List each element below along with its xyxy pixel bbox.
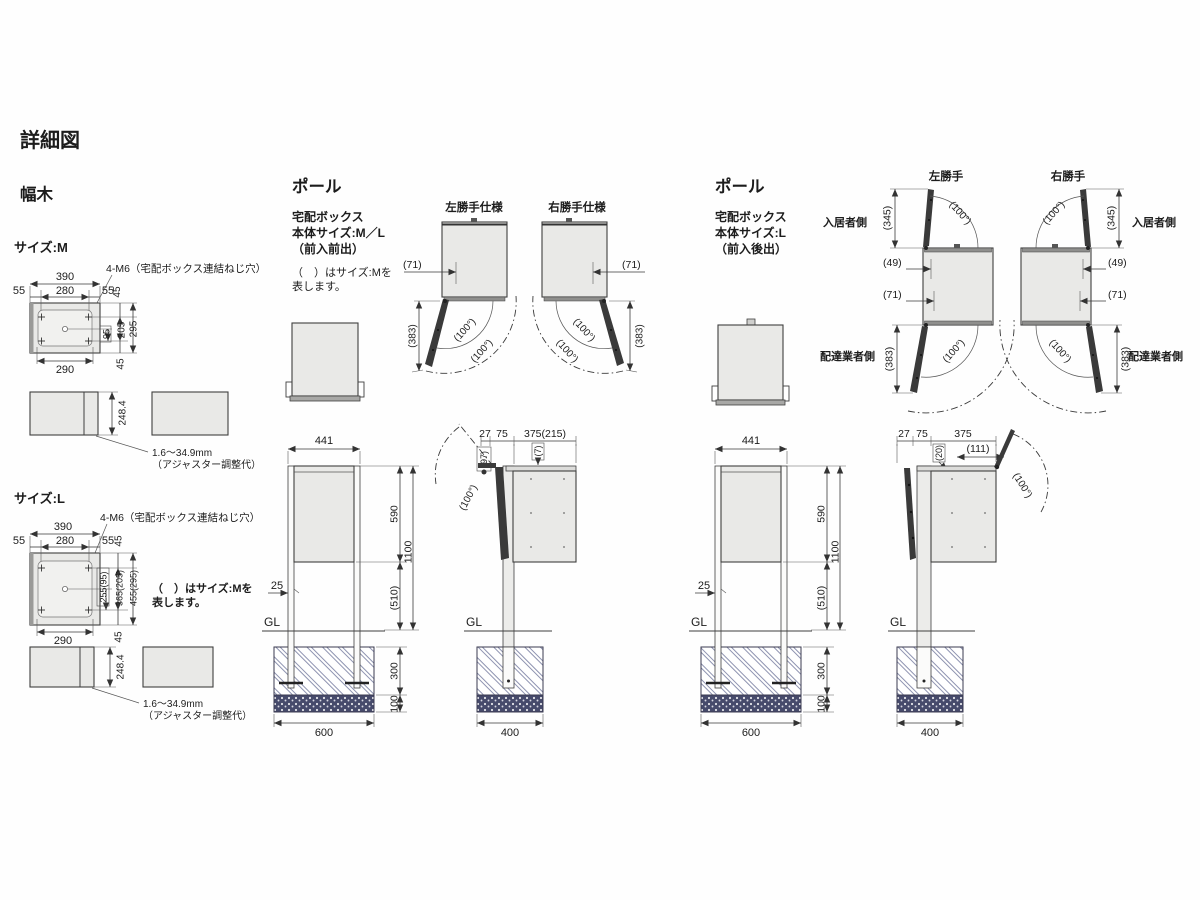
right-spec-angle-1: (100°): [571, 316, 597, 344]
dim-l-55l: 55: [13, 535, 25, 547]
dim-m-45top: 45: [112, 286, 123, 298]
rear-lp-49: (49): [883, 257, 902, 269]
pf-front-510: (510): [389, 586, 401, 611]
pf-side-375: 375(215): [524, 428, 566, 440]
pf-front-gl: GL: [264, 615, 280, 629]
pr-front-1100: 1100: [830, 541, 842, 564]
page-title: 詳細図: [20, 128, 80, 152]
pr-front-gl: GL: [691, 615, 707, 629]
pr-side-111: (111): [967, 443, 990, 455]
left-spec-angle-1: (100°): [452, 316, 478, 344]
pole-rear-heading: ポール: [715, 176, 765, 196]
dim-l-45top: 45: [114, 535, 125, 547]
dim-l-280: 280: [56, 535, 74, 547]
left-spec-angle-2: (100°): [469, 337, 495, 365]
dim-l-390: 390: [54, 521, 72, 533]
pr-front-25: 25: [698, 580, 710, 592]
rear-rp-49: (49): [1108, 257, 1127, 269]
dim-m-290: 290: [56, 364, 74, 376]
pole-front-left-spec-plan: 左勝手仕様 (100°) (100°) (71) (383): [403, 200, 516, 373]
left-spec-d383: (383): [408, 324, 419, 347]
size-m-label: サイズ:M: [14, 240, 68, 255]
dim-l-365: 365(205): [115, 570, 125, 606]
m-adjuster-note-1: 1.6〜34.9mm: [152, 448, 212, 459]
pr-side-27: 27: [898, 428, 910, 440]
habaki-size-m-plan: サイズ:M 4-M6（宅配ボックス連結ねじ穴） 390 55 280 55 45…: [13, 240, 266, 376]
dim-l-45bot: 45: [114, 631, 125, 643]
resident-side-label-right: 入居者側: [1132, 215, 1176, 229]
pole-rear-text-block: ポール 宅配ボックス 本体サイズ:L （前入後出）: [715, 176, 787, 256]
pole-rear-small-front-view: [712, 319, 789, 405]
pr-front-441: 441: [742, 435, 760, 447]
pr-front-510: (510): [816, 586, 828, 611]
rear-rp-71: (71): [1108, 289, 1127, 301]
right-spec-d383: (383): [635, 324, 646, 347]
dim-l-455: 455(295): [129, 570, 139, 606]
right-spec-label: 右勝手仕様: [547, 200, 606, 214]
rear-right-plan-label: 右勝手: [1050, 169, 1086, 183]
pole-rear-side-view: 27 75 375 (20) (111) (100°) GL 400: [888, 428, 1048, 739]
left-spec-d71: (71): [403, 259, 422, 271]
pr-side-375: 375: [954, 428, 972, 440]
pf-side-gl: GL: [466, 615, 482, 629]
pf-front-1100: 1100: [403, 541, 415, 564]
pf-side-75: 75: [496, 428, 508, 440]
pole-front-note-2: 表します。: [292, 279, 346, 293]
pole-rear-product: 宅配ボックス: [715, 209, 787, 224]
rear-left-plan-label: 左勝手: [928, 169, 964, 183]
courier-side-label-left: 配達業者側: [820, 349, 875, 363]
pole-front-text-block: ポール 宅配ボックス 本体サイズ:M／L （前入前出） （ ）はサイズ:Mを 表…: [292, 176, 392, 293]
pole-front-right-spec-plan: 右勝手仕様 (100°) (100°) (71) (383): [533, 200, 646, 373]
size-l-note-1: （ ）はサイズ:Mを: [152, 581, 253, 595]
pole-rear-front-view: 441 590 (510) 1100 25 GL 300 100 600: [689, 435, 846, 739]
dim-m-280: 280: [56, 285, 74, 297]
pr-front-100: 100: [816, 695, 828, 713]
dim-l-2484: 248.4: [116, 654, 127, 679]
pole-front-side-view: 27 75 375(215) (97) (7) (100°) GL 400: [435, 424, 576, 739]
dim-m-2484: 248.4: [118, 400, 129, 425]
dim-m-205: 205: [117, 321, 128, 338]
m-adjuster-note-2: （アジャスター調整代）: [152, 458, 261, 471]
size-l-note-2: 表します。: [151, 595, 206, 609]
l-adjuster-note-2: （アジャスター調整代）: [143, 709, 252, 722]
pole-front-product: 宅配ボックス: [292, 209, 364, 224]
size-l-screw-note: 4-M6（宅配ボックス連結ねじ穴）: [100, 511, 260, 524]
pole-rear-loading: （前入後出）: [715, 241, 787, 256]
pole-front-small-front-view: [286, 323, 364, 401]
l-adjuster-note-1: 1.6〜34.9mm: [143, 699, 203, 710]
pf-front-25: 25: [271, 580, 283, 592]
size-m-screw-note: 4-M6（宅配ボックス連結ねじ穴）: [106, 262, 266, 275]
pr-side-400: 400: [921, 727, 939, 739]
rear-rp-angle-top: (100°): [1041, 199, 1067, 227]
rear-lp-71: (71): [883, 289, 902, 301]
rear-lp-383: (383): [884, 347, 896, 372]
pole-rear-right-plan: 右勝手 (100°) (345) (49) (71) (383) (100°): [1000, 169, 1132, 413]
size-l-label: サイズ:L: [14, 491, 65, 506]
right-spec-angle-2: (100°): [554, 337, 580, 365]
pr-front-600: 600: [742, 727, 760, 739]
pf-front-600: 600: [315, 727, 333, 739]
pr-side-20: (20): [934, 445, 944, 461]
rear-rp-345: (345): [1106, 206, 1118, 231]
pf-front-441: 441: [315, 435, 333, 447]
pr-side-gl: GL: [890, 615, 906, 629]
pole-front-heading: ポール: [292, 176, 342, 196]
pr-front-300: 300: [816, 662, 828, 680]
pole-front-note-1: （ ）はサイズ:Mを: [292, 265, 392, 279]
dim-m-295: 295: [129, 320, 140, 337]
habaki-size-l-plan: サイズ:L 4-M6（宅配ボックス連結ねじ穴） 390 55 280 55 45…: [13, 491, 260, 647]
pf-front-100: 100: [389, 695, 401, 713]
pf-front-590: 590: [389, 505, 401, 523]
pr-side-75: 75: [916, 428, 928, 440]
habaki-size-l-side: 248.4 1.6〜34.9mm （アジャスター調整代）: [30, 647, 252, 722]
dim-m-55l: 55: [13, 285, 25, 297]
left-spec-label: 左勝手仕様: [444, 200, 503, 214]
habaki-size-m-side: 248.4 1.6〜34.9mm （アジャスター調整代）: [30, 392, 261, 471]
right-spec-d71: (71): [622, 259, 641, 271]
pole-rear-left-plan: 左勝手 (100°) (345) (49) (71) (383) (100°): [882, 169, 1015, 413]
dim-m-45bot: 45: [116, 358, 127, 370]
detail-drawing-page: 詳細図 幅木 サイズ:M 4-M6（宅配ボックス連結ねじ穴） 390 55 28…: [0, 0, 1200, 900]
pf-front-300: 300: [389, 662, 401, 680]
dim-l-290: 290: [54, 635, 72, 647]
pole-front-front-view: 441 590 (510) 1100 25 GL 300 100 600: [262, 435, 419, 739]
dim-l-255: 255(95): [99, 571, 109, 602]
pole-front-body-size: 本体サイズ:M／L: [292, 225, 385, 240]
dim-m-390: 390: [56, 271, 74, 283]
dim-l-55r: 55: [102, 535, 114, 547]
pf-side-400: 400: [501, 727, 519, 739]
courier-side-label-right: 配達業者側: [1128, 349, 1183, 363]
dim-m-95: 95: [102, 329, 112, 339]
rear-lp-angle-top: (100°): [947, 199, 973, 227]
pf-side-angle: (100°): [458, 483, 481, 512]
pr-front-590: 590: [816, 505, 828, 523]
habaki-heading: 幅木: [20, 184, 54, 204]
technical-drawing-canvas: 詳細図 幅木 サイズ:M 4-M6（宅配ボックス連結ねじ穴） 390 55 28…: [0, 0, 1200, 900]
pr-side-angle: (100°): [1010, 471, 1034, 500]
pf-side-7: (7): [533, 445, 543, 456]
pole-rear-body-size: 本体サイズ:L: [715, 225, 786, 240]
pf-side-27: 27: [479, 428, 491, 440]
resident-side-label-left: 入居者側: [823, 215, 867, 229]
rear-lp-345: (345): [882, 206, 894, 231]
pole-front-loading: （前入前出）: [292, 241, 364, 256]
